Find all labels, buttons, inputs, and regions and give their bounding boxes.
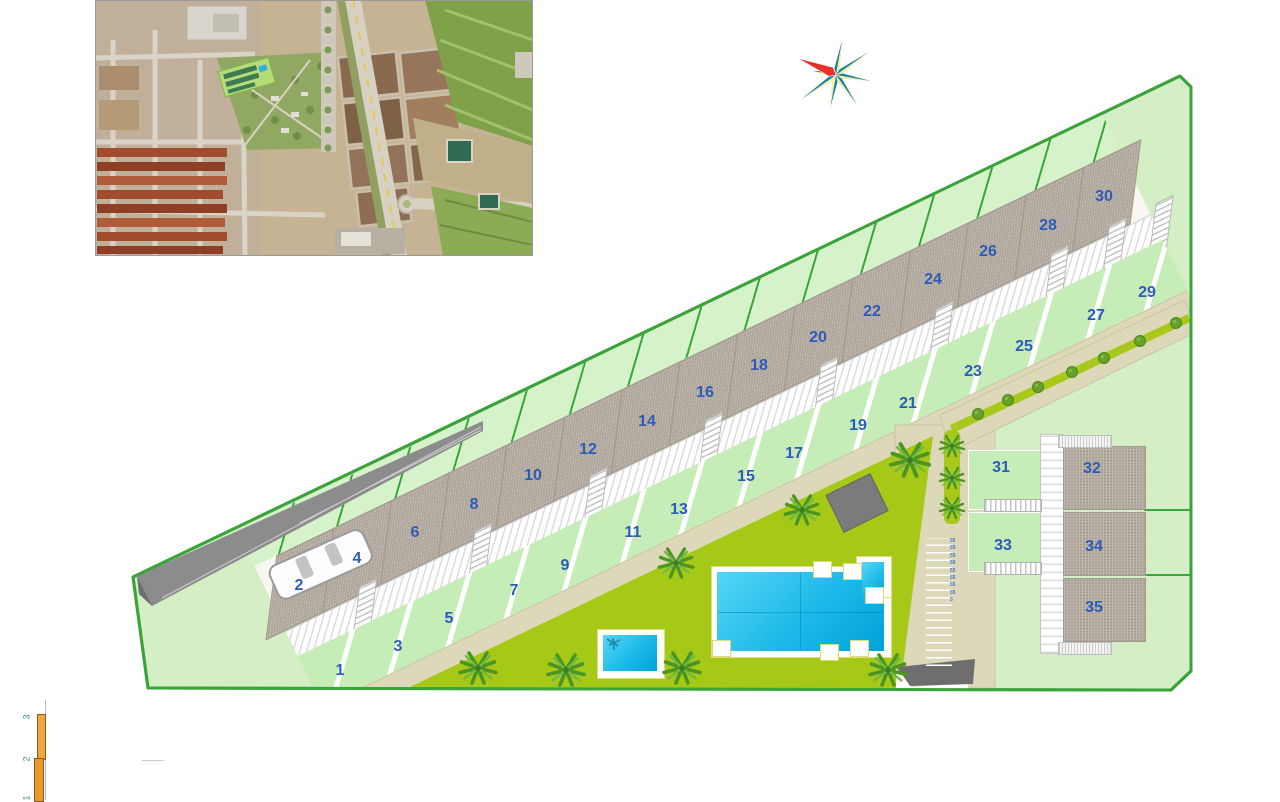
plot-label: 4 [353,550,362,568]
plot-label: 6 [411,524,420,542]
plot-label: 28 [1039,217,1057,235]
scale-label: 3 [22,714,32,719]
plot-label: 35 [1085,599,1103,617]
plot-label: 5 [445,610,454,628]
plot-label: 18 [750,357,768,375]
plot-label: 7 [510,582,519,600]
site-plan-page: 55555555555555555 [0,0,1280,800]
plot-label: 8 [470,496,479,514]
plot-label: 10 [524,467,542,485]
plot-label: 9 [561,557,570,575]
plot-label: 33 [994,537,1012,555]
compass-rose-icon [786,25,886,125]
plot-label: 31 [992,459,1010,477]
plot-label: 32 [1083,460,1101,478]
plot-label: 11 [625,524,642,542]
plot-label: 20 [809,329,827,347]
plot-label: 13 [670,501,688,519]
plot-label: 3 [394,638,403,656]
plot-label: 24 [924,271,942,289]
plot-label: 22 [863,303,881,321]
plot-label: 23 [964,363,982,381]
plot-label: 16 [696,384,714,402]
scale-label: 2 [22,756,32,761]
plot-label: 15 [737,468,755,486]
aerial-photo-inset [95,0,533,256]
plot-label: 30 [1095,188,1113,206]
plot-label: 21 [899,395,917,413]
plot-label: 12 [579,441,597,459]
plot-label: 26 [979,243,997,261]
plot-label: 25 [1015,338,1033,356]
plot-label: 27 [1087,307,1105,325]
plot-label: 29 [1138,284,1156,302]
plot-label: 17 [785,445,803,463]
plot-label: 19 [849,417,867,435]
plot-label: 2 [295,577,304,595]
plot-label: 1 [336,662,345,680]
plot-label: 14 [638,413,656,431]
plot-label: 34 [1085,538,1103,556]
